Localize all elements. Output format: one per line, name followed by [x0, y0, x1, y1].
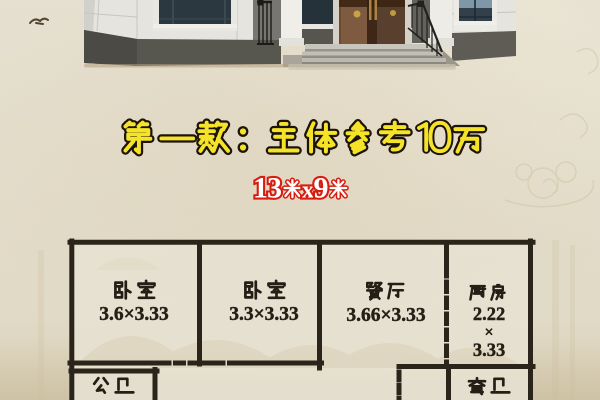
- svg-text:3.3×3.33: 3.3×3.33: [229, 304, 299, 325]
- svg-text:2.22: 2.22: [473, 305, 505, 325]
- svg-text:3.6×3.33: 3.6×3.33: [99, 304, 169, 325]
- svg-text:×: ×: [484, 324, 493, 341]
- svg-text:9: 9: [314, 172, 329, 205]
- svg-text:13: 13: [253, 172, 281, 205]
- svg-text:3.66×3.33: 3.66×3.33: [346, 305, 426, 326]
- svg-text:3.33: 3.33: [473, 341, 505, 361]
- svg-text:x: x: [302, 178, 314, 204]
